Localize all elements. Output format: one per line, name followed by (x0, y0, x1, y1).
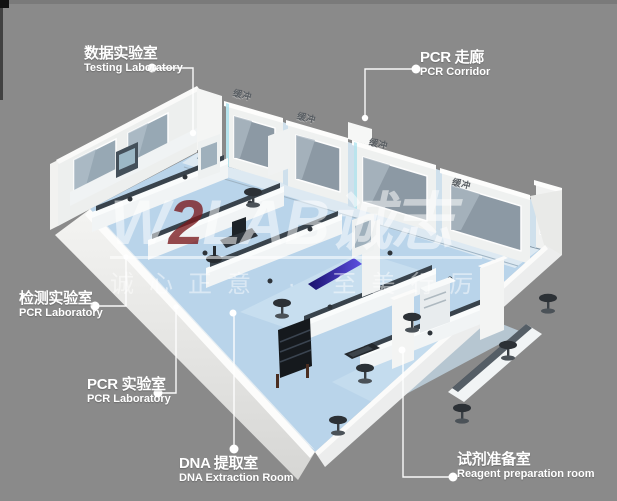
label-en: PCR Laboratory (87, 394, 171, 406)
leader-reagent-room (403, 350, 453, 477)
label-testing-laboratory: 数据实验室 Testing Laboratory (84, 46, 183, 74)
label-en: DNA Extraction Room (179, 473, 294, 485)
label-en: Testing Laboratory (84, 63, 183, 75)
label-dna-extraction: DNA 提取室 DNA Extraction Room (179, 456, 294, 484)
leader-dot (362, 115, 368, 121)
leader-dot (399, 347, 406, 354)
label-en: PCR Corridor (420, 67, 490, 79)
label-cn: 试剂准备室 (457, 452, 595, 468)
leader-dot (173, 304, 178, 309)
label-en: Reagent preparation room (457, 469, 595, 481)
label-cn: PCR 实验室 (87, 377, 171, 393)
leader-dot (190, 130, 196, 136)
leader-lines (0, 0, 617, 501)
label-cn: PCR 走廊 (420, 50, 490, 66)
label-cn: 数据实验室 (84, 46, 183, 62)
label-pcr-corridor: PCR 走廊 PCR Corridor (420, 50, 490, 78)
leader-dot (230, 310, 237, 317)
leader-dot (123, 254, 128, 259)
lab-floorplan-scene: W2LAB诚志 诚心正意 · 至美行厉 缓冲 缓冲 缓冲 缓冲 (0, 0, 617, 501)
label-inspection-lab: 检测实验室 PCR Laboratory (19, 291, 103, 319)
label-en: PCR Laboratory (19, 308, 103, 320)
label-cn: 检测实验室 (19, 291, 103, 307)
leader-dot (230, 445, 239, 454)
label-reagent-room: 试剂准备室 Reagent preparation room (457, 452, 595, 480)
label-pcr-laboratory: PCR 实验室 PCR Laboratory (87, 377, 171, 405)
leader-pcr-corridor (365, 69, 416, 118)
leader-testing-laboratory (152, 68, 193, 133)
label-cn: DNA 提取室 (179, 456, 294, 472)
